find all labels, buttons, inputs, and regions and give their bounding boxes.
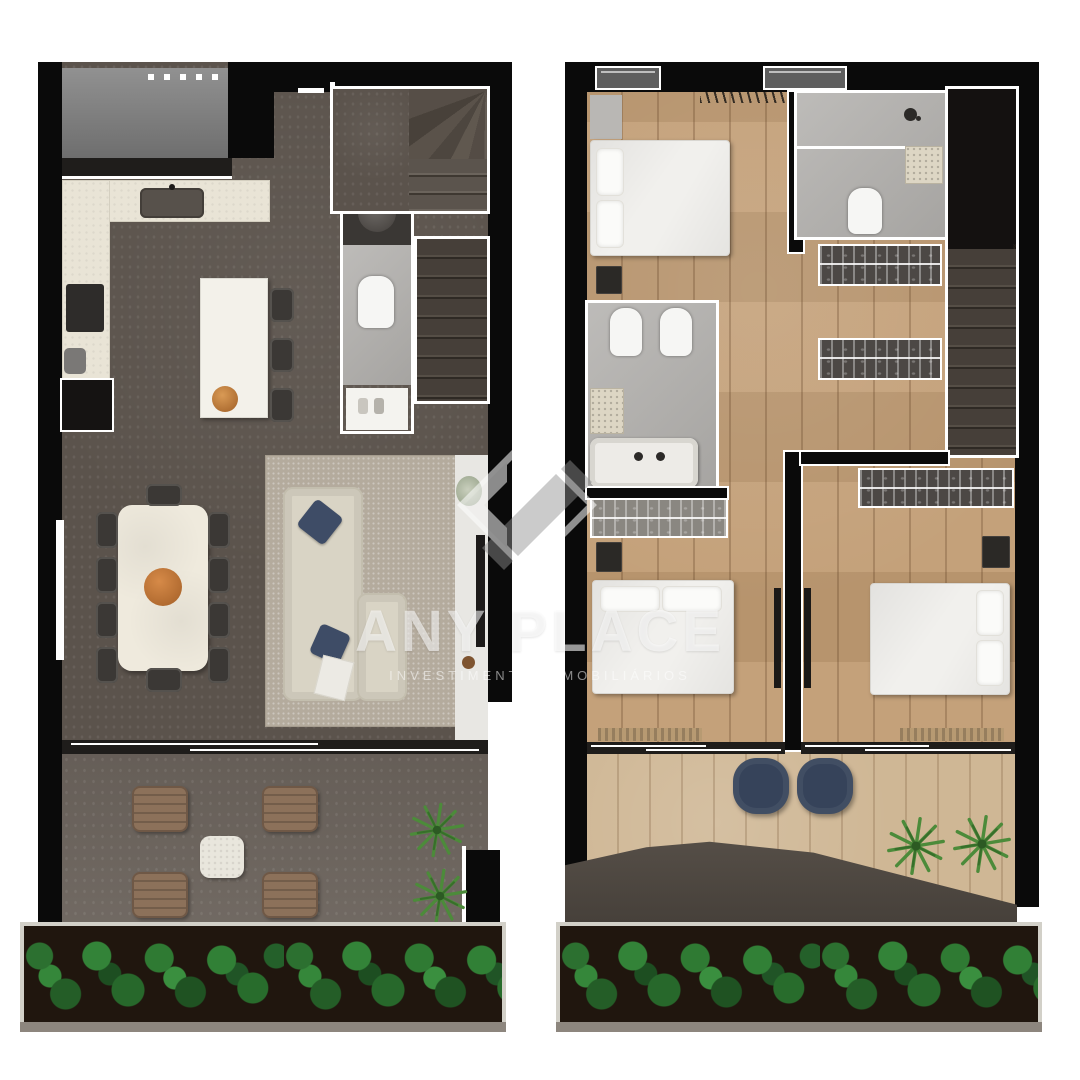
stair-winder	[409, 89, 487, 159]
bedroom1-nightstand	[596, 266, 622, 294]
terrace-chair	[132, 786, 188, 832]
floor1-planter-edge	[20, 1022, 506, 1032]
balcony-pouf	[797, 758, 853, 814]
walkin-closet-rack	[818, 338, 942, 380]
dining-chair-head	[146, 484, 182, 506]
stair-treads	[948, 249, 1016, 455]
palm-plant-icon	[408, 864, 472, 928]
shower-head	[904, 108, 917, 121]
bedroom3-closet	[858, 468, 1014, 508]
terrace-chair	[132, 872, 188, 918]
cooktop	[66, 284, 104, 332]
fridge	[62, 380, 112, 430]
bathroom1-vanity	[905, 146, 943, 184]
bedroom3-nightstand	[982, 536, 1010, 568]
dining-chair	[208, 512, 230, 548]
cabinet-vent-dots	[148, 74, 224, 80]
watermark-subtitle: INVESTIMENTOS IMOBILIÁRIOS	[0, 668, 1080, 683]
kitchen-backsplash	[62, 158, 232, 178]
bedroom2-bench	[598, 728, 702, 741]
wall-left	[38, 62, 62, 924]
bathroom2-toilet	[610, 308, 642, 356]
floor2-planter-edge	[556, 1022, 1042, 1032]
stair-landing	[333, 89, 409, 211]
bedroom2-closet	[590, 498, 728, 538]
powder-shelf	[346, 388, 408, 430]
bed-pillow	[596, 148, 624, 196]
dining-chair	[96, 557, 118, 593]
rooftop-unit	[595, 66, 661, 90]
kitchen-tall-cabinet	[62, 68, 228, 158]
bathroom2-vanity	[590, 388, 624, 434]
terrace-sliding-door	[62, 740, 488, 754]
bathroom2-bidet	[660, 308, 692, 356]
terrace-table	[200, 836, 244, 878]
kitchen-sink	[140, 188, 204, 218]
terrace-chair	[262, 786, 318, 832]
bathroom2-bathtub	[590, 438, 698, 488]
wall-bed2-top	[587, 488, 727, 498]
entry-door-mark	[298, 88, 324, 93]
island-stool	[270, 288, 294, 322]
stair-treads-lower	[417, 239, 487, 401]
floor2-planter	[556, 922, 1042, 1028]
bed-pillow	[596, 200, 624, 248]
island-decor-bowl	[212, 386, 238, 412]
palm-plant-icon	[405, 798, 469, 862]
wall-bed3-top	[801, 452, 948, 464]
wall-top-block	[228, 62, 274, 158]
dining-chair	[208, 557, 230, 593]
palm-plant-icon	[948, 810, 1016, 878]
bathroom1-toilet	[848, 188, 882, 234]
watermark-brand: ANY PLACE	[0, 598, 1080, 665]
bedroom3-bench	[900, 728, 1004, 741]
walkin-closet-rack	[818, 244, 942, 286]
floor1-planter	[20, 922, 506, 1028]
anyplace-logo	[452, 430, 602, 580]
bedroom1-cabinet	[590, 95, 622, 139]
kitchen-faucet	[169, 184, 175, 190]
balcony-sliding-door	[801, 742, 1015, 754]
powder-toilet	[358, 276, 394, 328]
balcony-pouf	[733, 758, 789, 814]
island-stool	[270, 338, 294, 372]
bathroom1-shower-divider	[797, 146, 907, 149]
island-stool	[270, 388, 294, 422]
coffee-maker	[64, 348, 86, 374]
balcony-sliding-door	[587, 742, 785, 754]
powder-shelf-items	[358, 398, 368, 414]
floorplan-canvas: ANY PLACE INVESTIMENTOS IMOBILIÁRIOS	[0, 0, 1080, 1080]
stair-winder-dark	[948, 89, 1016, 249]
stair-treads-upper	[409, 159, 487, 211]
palm-plant-icon	[882, 812, 950, 880]
kitchen-shelf-line	[62, 176, 232, 179]
rooftop-unit	[763, 66, 847, 90]
tub-faucet	[634, 452, 643, 461]
floor2-plan	[540, 0, 1080, 1080]
terrace-chair	[262, 872, 318, 918]
dining-chair	[96, 512, 118, 548]
